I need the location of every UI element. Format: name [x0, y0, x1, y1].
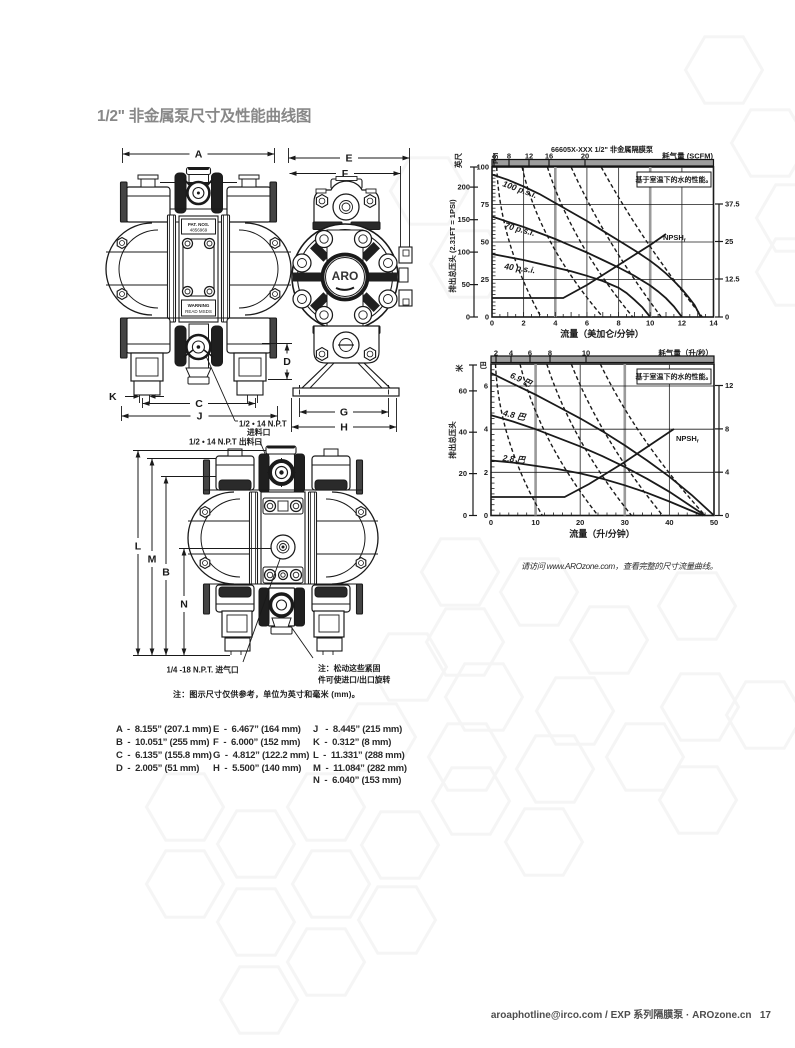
svg-text:10: 10	[646, 319, 654, 328]
svg-text:0: 0	[489, 518, 493, 527]
svg-text:12: 12	[725, 381, 733, 390]
svg-text:50: 50	[481, 238, 489, 247]
svg-text:J: J	[197, 411, 203, 423]
svg-text:进料口: 进料口	[247, 427, 270, 437]
svg-text:流量（升/分钟）: 流量（升/分钟）	[569, 528, 635, 539]
svg-text:0: 0	[490, 319, 494, 328]
svg-text:10: 10	[531, 518, 539, 527]
svg-text:40: 40	[665, 518, 673, 527]
svg-text:0: 0	[466, 313, 470, 322]
svg-text:30: 30	[621, 518, 629, 527]
svg-text:4: 4	[725, 468, 730, 477]
svg-text:6: 6	[585, 319, 589, 328]
svg-text:PSI: PSI	[493, 153, 500, 164]
svg-text:37.5: 37.5	[725, 200, 740, 209]
svg-text:READ MSDS: READ MSDS	[185, 309, 212, 314]
svg-text:耗气量（升/秒）: 耗气量（升/秒）	[658, 348, 713, 358]
svg-text:0: 0	[485, 313, 489, 322]
svg-text:4856969: 4856969	[190, 228, 208, 233]
svg-text:200: 200	[457, 183, 470, 192]
svg-text:排出总压头: 排出总压头	[447, 421, 457, 459]
svg-text:6: 6	[528, 349, 532, 358]
svg-text:ARO: ARO	[332, 269, 359, 283]
svg-text:件可使进口/出口旋转: 件可使进口/出口旋转	[318, 675, 391, 685]
svg-text:B: B	[162, 567, 170, 579]
svg-text:25: 25	[725, 237, 733, 246]
svg-text:H: H	[340, 422, 348, 434]
svg-text:8: 8	[725, 424, 729, 433]
svg-text:1/4 -18 N.P.T. 进气口: 1/4 -18 N.P.T. 进气口	[167, 665, 239, 675]
svg-text:WARNING: WARNING	[188, 303, 210, 308]
svg-text:10: 10	[582, 349, 590, 358]
svg-text:G: G	[340, 407, 348, 419]
svg-text:流量（美加仑/分钟）: 流量（美加仑/分钟）	[560, 328, 644, 339]
svg-text:基于室温下的水的性能。: 基于室温下的水的性能。	[635, 372, 713, 381]
svg-text:巴: 巴	[480, 361, 488, 370]
svg-text:66605X-XXX 1/2" 非金属隔膜泵: 66605X-XXX 1/2" 非金属隔膜泵	[551, 145, 654, 154]
svg-text:耗气量 (SCFM): 耗气量 (SCFM)	[662, 151, 713, 161]
svg-text:0: 0	[725, 511, 729, 520]
svg-text:NPSHr: NPSHr	[663, 233, 687, 244]
svg-text:NPSHr: NPSHr	[676, 434, 700, 445]
svg-text:0: 0	[725, 313, 729, 322]
svg-text:50: 50	[462, 280, 470, 289]
svg-text:PAT. NOS.: PAT. NOS.	[188, 222, 209, 227]
svg-text:米: 米	[454, 364, 464, 372]
svg-text:100: 100	[476, 163, 489, 172]
svg-text:12: 12	[525, 152, 533, 161]
svg-text:K: K	[109, 391, 117, 403]
svg-text:2: 2	[494, 349, 498, 358]
svg-text:60: 60	[459, 386, 467, 395]
svg-text:8: 8	[617, 319, 621, 328]
svg-text:1/2 • 14 N.P.T 出料口: 1/2 • 14 N.P.T 出料口	[189, 437, 262, 447]
svg-text:E: E	[345, 153, 352, 165]
svg-text:50: 50	[710, 518, 718, 527]
svg-text:0: 0	[463, 511, 467, 520]
svg-text:排出总压头 (2.31FT = 1PSI): 排出总压头 (2.31FT = 1PSI)	[447, 199, 457, 293]
svg-text:0: 0	[484, 511, 488, 520]
svg-text:100: 100	[457, 248, 470, 257]
svg-text:英尺: 英尺	[453, 153, 463, 168]
svg-text:L: L	[135, 541, 142, 553]
svg-text:20: 20	[576, 518, 584, 527]
svg-text:A: A	[195, 149, 203, 161]
svg-text:14: 14	[709, 319, 718, 328]
svg-text:6: 6	[484, 382, 488, 391]
svg-text:8: 8	[507, 152, 511, 161]
svg-text:8: 8	[548, 349, 552, 358]
svg-text:40: 40	[459, 428, 467, 437]
svg-text:12.5: 12.5	[725, 275, 740, 284]
svg-text:2: 2	[484, 468, 488, 477]
svg-text:D: D	[283, 356, 291, 368]
svg-text:N: N	[180, 599, 188, 611]
svg-text:基于室温下的水的性能。: 基于室温下的水的性能。	[635, 175, 713, 184]
svg-text:25: 25	[481, 275, 489, 284]
svg-text:注：松动这些紧固: 注：松动这些紧固	[318, 663, 381, 673]
svg-text:75: 75	[481, 200, 489, 209]
svg-text:M: M	[148, 554, 157, 566]
svg-text:12: 12	[678, 319, 686, 328]
svg-text:C: C	[195, 398, 203, 410]
svg-text:4: 4	[553, 319, 558, 328]
svg-text:4: 4	[484, 425, 489, 434]
svg-text:20: 20	[459, 469, 467, 478]
svg-text:150: 150	[457, 215, 470, 224]
svg-text:2: 2	[522, 319, 526, 328]
